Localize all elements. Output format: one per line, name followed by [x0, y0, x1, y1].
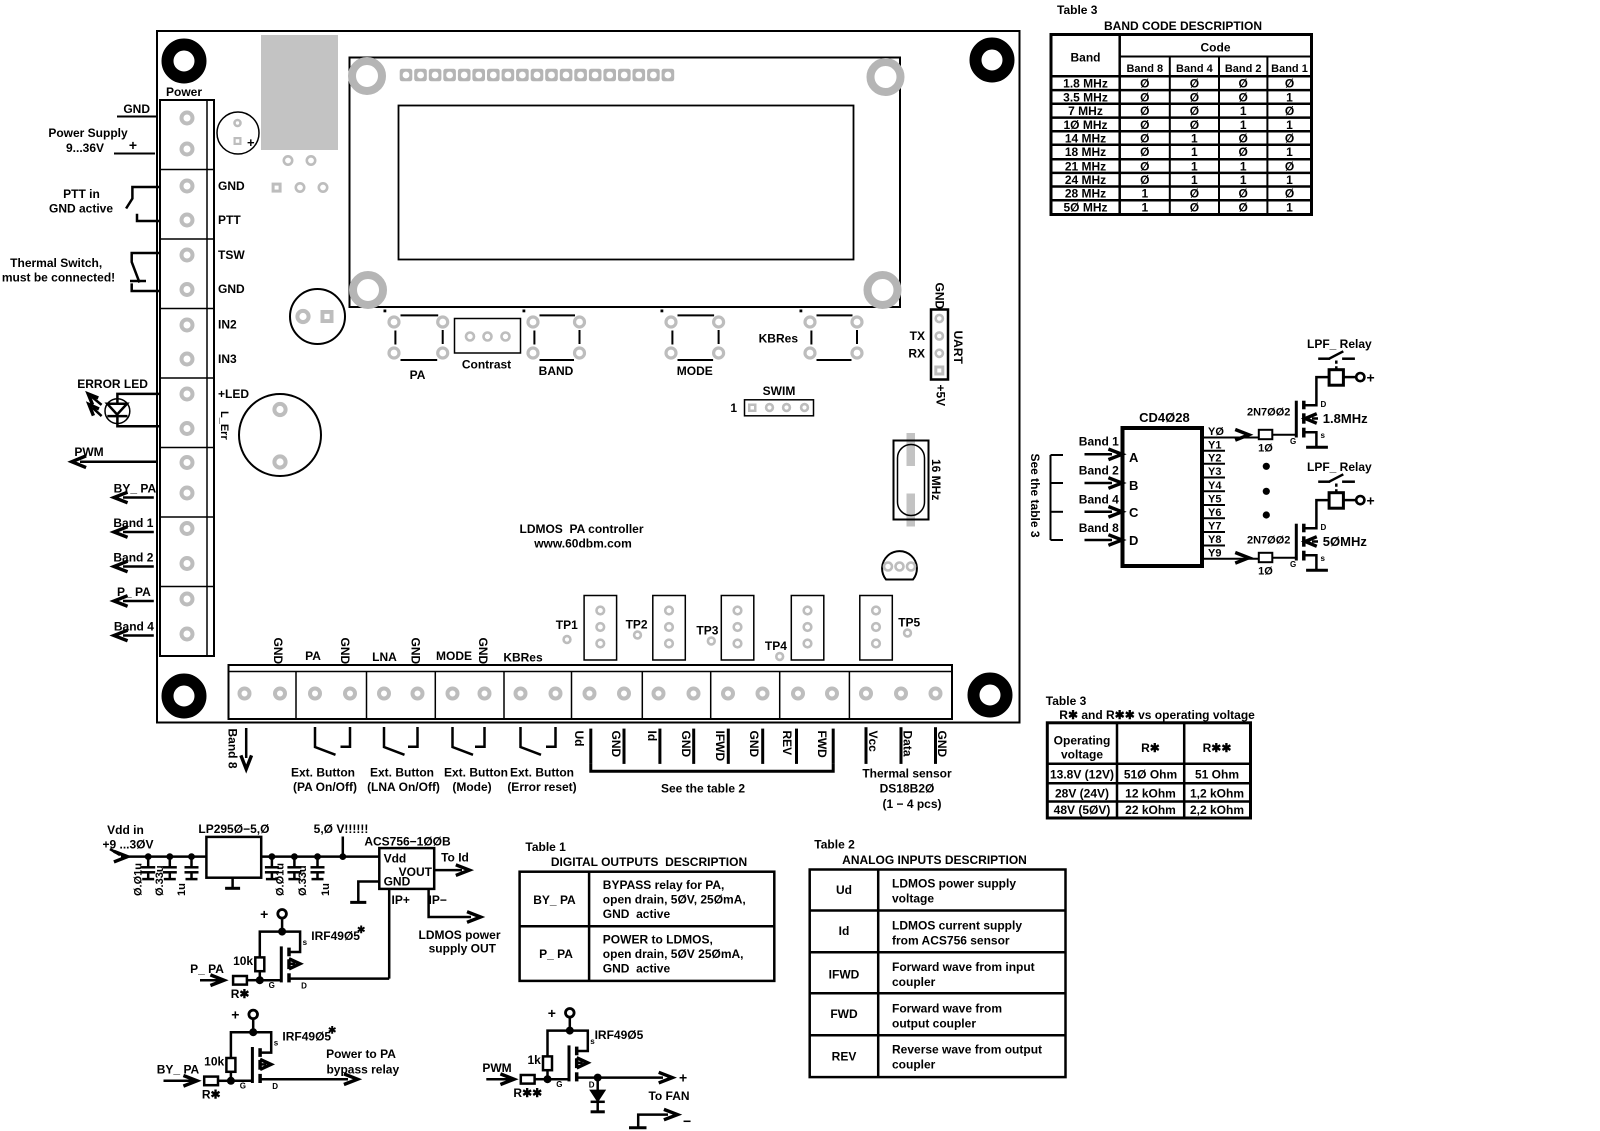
- svg-text:IN3: IN3: [218, 352, 237, 366]
- svg-text:BAND CODE DESCRIPTION: BAND CODE DESCRIPTION: [1104, 19, 1262, 33]
- svg-text:TP4: TP4: [765, 639, 787, 653]
- svg-text:1: 1: [1191, 159, 1198, 173]
- svg-text:Y1: Y1: [1208, 439, 1221, 451]
- svg-text:2N7ØØ2: 2N7ØØ2: [1247, 535, 1290, 547]
- svg-text:Reverse wave from output: Reverse wave from output: [892, 1043, 1042, 1057]
- svg-text:IFWD: IFWD: [713, 731, 727, 762]
- svg-text:G: G: [1290, 560, 1296, 569]
- svg-text:UART: UART: [951, 331, 965, 365]
- svg-text:Thermal sensor: Thermal sensor: [862, 767, 952, 781]
- svg-text:LPF_ Relay: LPF_ Relay: [1307, 460, 1372, 474]
- svg-text:28V (24V): 28V (24V): [1055, 786, 1109, 800]
- svg-text:D: D: [301, 981, 307, 990]
- svg-text:2,2 kOhm: 2,2 kOhm: [1190, 803, 1244, 817]
- svg-text:5,Ø V!!!!!!: 5,Ø V!!!!!!: [314, 822, 369, 836]
- svg-text:1: 1: [1191, 131, 1198, 145]
- svg-text:✱: ✱: [328, 1026, 337, 1037]
- svg-text:IFWD: IFWD: [829, 968, 860, 982]
- svg-text:1: 1: [1240, 104, 1247, 118]
- svg-text:BYPASS relay for PA,: BYPASS relay for PA,: [603, 878, 725, 892]
- svg-text:(PA On/Off): (PA On/Off): [293, 780, 357, 794]
- svg-text:voltage: voltage: [892, 892, 934, 906]
- svg-text:LDMOS current supply: LDMOS current supply: [892, 919, 1022, 933]
- svg-text:Ø.Ø1u: Ø.Ø1u: [274, 863, 286, 896]
- svg-text:DIGITAL OUTPUTS DESCRIPTION: DIGITAL OUTPUTS DESCRIPTION: [551, 855, 747, 869]
- svg-text:IRF49Ø5: IRF49Ø5: [311, 929, 360, 943]
- svg-text:R✱: R✱: [1141, 741, 1160, 755]
- svg-text:Band 8: Band 8: [1126, 63, 1163, 75]
- svg-text:Band 4: Band 4: [1079, 492, 1119, 506]
- svg-text:Ø: Ø: [1239, 77, 1248, 91]
- svg-text:open drain, 5ØV 25ØmA,: open drain, 5ØV 25ØmA,: [603, 947, 744, 961]
- svg-text:R✱ and R✱✱ vs operating voltag: R✱ and R✱✱ vs operating voltage: [1059, 708, 1255, 722]
- svg-text:Ext. Button: Ext. Button: [370, 766, 434, 780]
- svg-text:13.8V (12V): 13.8V (12V): [1050, 768, 1114, 782]
- svg-text:GND active: GND active: [603, 907, 671, 921]
- svg-text:FWD: FWD: [815, 731, 829, 759]
- svg-text:Band 1: Band 1: [1079, 434, 1119, 448]
- svg-text:Ext. Button: Ext. Button: [444, 766, 508, 780]
- svg-text:Y2: Y2: [1208, 452, 1221, 464]
- svg-text:1: 1: [1286, 201, 1293, 215]
- svg-text:Y6: Y6: [1208, 507, 1221, 519]
- svg-text:GND: GND: [933, 283, 947, 310]
- svg-text:To FAN: To FAN: [648, 1089, 689, 1103]
- svg-text:Band 2: Band 2: [1225, 63, 1262, 75]
- svg-text:12 kOhm: 12 kOhm: [1125, 786, 1176, 800]
- svg-text:1: 1: [1240, 118, 1247, 132]
- svg-text:DS18B2Ø: DS18B2Ø: [880, 782, 935, 796]
- svg-text:1: 1: [1240, 173, 1247, 187]
- svg-text:Ud: Ud: [572, 731, 586, 747]
- svg-text:+: +: [1367, 369, 1375, 385]
- svg-text:+: +: [247, 135, 255, 150]
- svg-text:Ø: Ø: [1190, 90, 1199, 104]
- svg-text:1: 1: [1141, 187, 1148, 201]
- svg-text:+: +: [548, 1005, 556, 1021]
- svg-text:Ø: Ø: [1239, 145, 1248, 159]
- svg-text:✱: ✱: [357, 925, 366, 936]
- svg-text:R✱✱: R✱✱: [513, 1086, 542, 1100]
- svg-text:Table 3: Table 3: [1057, 3, 1098, 17]
- svg-text:LDMOS PA controller: LDMOS PA controller: [519, 522, 643, 536]
- svg-text:+LED: +LED: [218, 387, 249, 401]
- svg-text:GND: GND: [747, 731, 761, 758]
- svg-text:Band 8: Band 8: [1079, 521, 1119, 535]
- svg-text:(1 − 4 pcs): (1 − 4 pcs): [882, 797, 941, 811]
- svg-text:must be connected!: must be connected!: [2, 271, 115, 285]
- svg-text:R✱: R✱: [202, 1087, 221, 1101]
- svg-text:G: G: [556, 1080, 562, 1089]
- svg-text:PWM: PWM: [74, 445, 103, 459]
- svg-text:GND: GND: [218, 179, 245, 193]
- svg-text:10k: 10k: [204, 1054, 224, 1068]
- svg-text:Ø: Ø: [1190, 187, 1199, 201]
- svg-text:BAND: BAND: [539, 364, 574, 378]
- svg-text:TP3: TP3: [696, 624, 718, 638]
- svg-text:7 MHz: 7 MHz: [1068, 104, 1103, 118]
- svg-text:1: 1: [1240, 159, 1247, 173]
- svg-text:51 Ohm: 51 Ohm: [1195, 768, 1239, 782]
- svg-text:GND: GND: [609, 731, 623, 758]
- svg-text:REV: REV: [832, 1050, 857, 1064]
- svg-text:Ud: Ud: [836, 883, 852, 897]
- svg-text:GND: GND: [338, 638, 352, 665]
- svg-text:Ø: Ø: [1190, 118, 1199, 132]
- svg-text:SWIM: SWIM: [763, 384, 796, 398]
- svg-text:Power to PA: Power to PA: [326, 1047, 396, 1061]
- svg-text:+: +: [679, 1070, 687, 1086]
- svg-text:R✱✱: R✱✱: [1203, 741, 1232, 755]
- svg-text:GND active: GND active: [603, 962, 671, 976]
- svg-text:s: s: [1321, 431, 1326, 440]
- svg-text:Band 1: Band 1: [113, 516, 153, 530]
- svg-text:LDMOS power supply: LDMOS power supply: [892, 877, 1016, 891]
- svg-text:Ext. Button: Ext. Button: [291, 766, 355, 780]
- svg-text:Table 3: Table 3: [1046, 694, 1087, 708]
- svg-text:See the table 2: See the table 2: [661, 782, 745, 796]
- svg-text:PA: PA: [305, 649, 321, 663]
- svg-text:Table 2: Table 2: [814, 838, 855, 852]
- svg-text:RX: RX: [908, 347, 925, 361]
- svg-text:Ø: Ø: [1190, 201, 1199, 215]
- svg-text:Vdd in: Vdd in: [107, 823, 144, 837]
- svg-text:IP−: IP−: [429, 893, 447, 907]
- svg-text:Ø: Ø: [1239, 201, 1248, 215]
- svg-text:LNA: LNA: [372, 650, 397, 664]
- svg-text:+: +: [1367, 492, 1375, 508]
- svg-text:C: C: [1129, 505, 1139, 520]
- svg-text:1Ø: 1Ø: [1258, 443, 1273, 455]
- svg-text:Ø: Ø: [1285, 187, 1294, 201]
- svg-text:GND: GND: [409, 638, 423, 665]
- svg-text:D: D: [1321, 523, 1327, 532]
- svg-text:G: G: [1290, 437, 1296, 446]
- svg-text:D: D: [589, 1080, 595, 1089]
- svg-text:1: 1: [730, 401, 737, 415]
- svg-text:10k: 10k: [233, 954, 253, 968]
- svg-text:Band 8: Band 8: [226, 729, 240, 769]
- svg-text:Ø: Ø: [1140, 131, 1149, 145]
- svg-text:Ø: Ø: [1140, 145, 1149, 159]
- svg-text:5Ø MHz: 5Ø MHz: [1063, 201, 1107, 215]
- svg-text:+: +: [260, 906, 268, 922]
- svg-text:ACS756−1ØØB: ACS756−1ØØB: [364, 835, 451, 849]
- svg-text:YØ: YØ: [1208, 426, 1224, 438]
- svg-text:MODE: MODE: [677, 364, 713, 378]
- svg-text:5ØMHz: 5ØMHz: [1323, 534, 1368, 549]
- svg-text:Data: Data: [901, 731, 915, 757]
- svg-text:48V (5ØV): 48V (5ØV): [1054, 803, 1111, 817]
- svg-text:Id: Id: [839, 924, 850, 938]
- svg-text:3.5 MHz: 3.5 MHz: [1063, 90, 1108, 104]
- svg-text:Band 2: Band 2: [113, 551, 153, 565]
- svg-text:voltage: voltage: [1061, 748, 1103, 762]
- svg-text:Thermal Switch,: Thermal Switch,: [10, 256, 102, 270]
- svg-text:www.60dbm.com: www.60dbm.com: [533, 537, 632, 551]
- svg-text:bypass relay: bypass relay: [326, 1063, 399, 1077]
- svg-text:21 MHz: 21 MHz: [1065, 159, 1106, 173]
- svg-text:CD4Ø28: CD4Ø28: [1139, 410, 1190, 425]
- svg-text:TX: TX: [910, 329, 925, 343]
- svg-text:1: 1: [1141, 201, 1148, 215]
- svg-text:Ø: Ø: [1140, 77, 1149, 91]
- svg-text:s: s: [1321, 554, 1326, 563]
- svg-text:24 MHz: 24 MHz: [1065, 173, 1106, 187]
- svg-text:1k: 1k: [527, 1053, 541, 1067]
- svg-text:B: B: [1129, 478, 1138, 493]
- svg-text:1u: 1u: [176, 883, 188, 896]
- svg-text:Ext. Button: Ext. Button: [510, 766, 574, 780]
- svg-text:1: 1: [1286, 90, 1293, 104]
- svg-text:+: +: [129, 137, 137, 153]
- svg-text:(Error reset): (Error reset): [507, 780, 576, 794]
- svg-text:1: 1: [1191, 145, 1198, 159]
- svg-text:Operating: Operating: [1054, 734, 1111, 748]
- svg-text:MODE: MODE: [436, 649, 472, 663]
- svg-text:FWD: FWD: [830, 1007, 858, 1021]
- svg-text:LP295Ø−5,Ø: LP295Ø−5,Ø: [198, 822, 269, 836]
- svg-text:22 kOhm: 22 kOhm: [1125, 803, 1176, 817]
- svg-text:Forward wave from input: Forward wave from input: [892, 960, 1035, 974]
- svg-text:1Ø: 1Ø: [1258, 566, 1273, 578]
- svg-text:Band 4: Band 4: [1176, 63, 1214, 75]
- svg-text:Ø: Ø: [1285, 159, 1294, 173]
- svg-text:(Mode): (Mode): [452, 780, 491, 794]
- svg-text:ERROR LED: ERROR LED: [77, 377, 148, 391]
- svg-text:To Id: To Id: [441, 851, 469, 865]
- svg-text:Band 2: Band 2: [1079, 464, 1119, 478]
- svg-text:ANALOG INPUTS DESCRIPTION: ANALOG INPUTS DESCRIPTION: [842, 853, 1027, 867]
- svg-text:Y9: Y9: [1208, 547, 1221, 559]
- svg-text:Ø: Ø: [1239, 187, 1248, 201]
- svg-text:Code: Code: [1201, 41, 1231, 55]
- svg-text:GND: GND: [476, 638, 490, 665]
- svg-text:D: D: [1321, 400, 1327, 409]
- svg-text:28 MHz: 28 MHz: [1065, 187, 1106, 201]
- svg-text:G: G: [269, 981, 275, 990]
- svg-text:TP2: TP2: [626, 618, 648, 632]
- svg-text:G: G: [240, 1081, 246, 1090]
- svg-text:GND: GND: [123, 102, 150, 116]
- svg-text:1: 1: [1286, 145, 1293, 159]
- svg-text:BY_ PA: BY_ PA: [157, 1063, 200, 1077]
- svg-text:1Ø MHz: 1Ø MHz: [1063, 118, 1107, 132]
- svg-text:Ø: Ø: [1285, 131, 1294, 145]
- svg-text:Y7: Y7: [1208, 521, 1221, 533]
- svg-text:R✱: R✱: [231, 987, 250, 1001]
- svg-text:Vdd: Vdd: [384, 852, 407, 866]
- svg-text:Ø: Ø: [1285, 77, 1294, 91]
- svg-text:Ø: Ø: [1140, 173, 1149, 187]
- svg-text:D: D: [1129, 533, 1138, 548]
- svg-text:1: 1: [1191, 173, 1198, 187]
- svg-text:GND: GND: [679, 731, 693, 758]
- svg-text:−: −: [683, 1113, 691, 1129]
- svg-text:See the table 3: See the table 3: [1028, 454, 1042, 538]
- svg-text:Ø: Ø: [1190, 77, 1199, 91]
- svg-text:s: s: [303, 938, 308, 947]
- svg-text:Contrast: Contrast: [462, 358, 511, 372]
- svg-text:A: A: [1129, 450, 1139, 465]
- svg-text:16 MHz: 16 MHz: [929, 459, 943, 500]
- svg-text:IP+: IP+: [392, 893, 410, 907]
- svg-text:PTT: PTT: [218, 213, 241, 227]
- svg-text:Ø.33u: Ø.33u: [297, 865, 309, 896]
- svg-text:BY_ PA: BY_ PA: [533, 893, 576, 907]
- svg-text:Ø: Ø: [1285, 104, 1294, 118]
- svg-text:P_ PA: P_ PA: [539, 947, 573, 961]
- svg-text:Table 1: Table 1: [525, 840, 566, 854]
- svg-text:Y8: Y8: [1208, 534, 1221, 546]
- svg-text:Forward wave from: Forward wave from: [892, 1002, 1002, 1016]
- svg-text:GND active: GND active: [49, 202, 113, 216]
- svg-text:D: D: [272, 1082, 278, 1091]
- svg-text:Ø: Ø: [1140, 104, 1149, 118]
- svg-text:+5V: +5V: [934, 385, 948, 407]
- svg-text:output coupler: output coupler: [892, 1017, 976, 1031]
- svg-text:14 MHz: 14 MHz: [1065, 131, 1106, 145]
- svg-text:P_ PA: P_ PA: [190, 962, 224, 976]
- svg-text:GND: GND: [935, 731, 949, 758]
- svg-text:Ø: Ø: [1140, 159, 1149, 173]
- svg-text:LDMOS power: LDMOS power: [418, 928, 500, 942]
- svg-text:GND: GND: [384, 875, 411, 889]
- svg-text:Band 1: Band 1: [1271, 63, 1308, 75]
- svg-text:1u: 1u: [320, 883, 332, 896]
- svg-text:Ø.33u: Ø.33u: [154, 865, 166, 896]
- svg-text:(LNA On/Off): (LNA On/Off): [367, 780, 440, 794]
- svg-text:Ø: Ø: [1140, 90, 1149, 104]
- svg-text:51Ø Ohm: 51Ø Ohm: [1124, 768, 1177, 782]
- svg-text:KBRes: KBRes: [503, 651, 543, 665]
- svg-text:GND: GND: [271, 638, 285, 665]
- svg-text:Ø: Ø: [1190, 104, 1199, 118]
- svg-text:2N7ØØ2: 2N7ØØ2: [1247, 407, 1290, 419]
- svg-text:open drain, 5ØV, 25ØmA,: open drain, 5ØV, 25ØmA,: [603, 893, 746, 907]
- svg-text:supply OUT: supply OUT: [429, 942, 497, 956]
- svg-text:coupler: coupler: [892, 1058, 936, 1072]
- svg-text:LPF_ Relay: LPF_ Relay: [1307, 337, 1372, 351]
- svg-text:REV: REV: [780, 731, 794, 756]
- svg-text:IRF49Ø5: IRF49Ø5: [595, 1028, 644, 1042]
- svg-text:1.8 MHz: 1.8 MHz: [1063, 77, 1108, 91]
- svg-text:Band: Band: [1071, 51, 1101, 65]
- svg-text:coupler: coupler: [892, 975, 936, 989]
- svg-text:Vcc: Vcc: [866, 731, 880, 753]
- svg-text:+: +: [231, 1006, 239, 1022]
- svg-text:9...36V: 9...36V: [66, 141, 104, 155]
- svg-text:PTT in: PTT in: [63, 187, 100, 201]
- svg-text:Ø: Ø: [1239, 90, 1248, 104]
- svg-text:1: 1: [1286, 173, 1293, 187]
- svg-text:1,2 kOhm: 1,2 kOhm: [1190, 786, 1244, 800]
- svg-text:Id: Id: [645, 731, 659, 742]
- svg-text:TSW: TSW: [218, 248, 245, 262]
- svg-text:Power: Power: [166, 85, 202, 99]
- svg-text:IN2: IN2: [218, 318, 237, 332]
- svg-text:Y4: Y4: [1208, 480, 1222, 492]
- svg-text:18 MHz: 18 MHz: [1065, 145, 1106, 159]
- svg-text:Ø.Ø1u: Ø.Ø1u: [133, 863, 145, 896]
- svg-text:s: s: [274, 1038, 279, 1047]
- svg-text:POWER to LDMOS,: POWER to LDMOS,: [603, 933, 713, 947]
- svg-text:Power Supply: Power Supply: [48, 126, 128, 140]
- svg-text:Y5: Y5: [1208, 494, 1221, 506]
- svg-text:PA: PA: [410, 368, 426, 382]
- svg-text:PWM: PWM: [482, 1061, 511, 1075]
- svg-text:1.8MHz: 1.8MHz: [1323, 411, 1368, 426]
- svg-text:TP1: TP1: [556, 618, 578, 632]
- svg-text:Ø: Ø: [1140, 118, 1149, 132]
- svg-text:from ACS756 sensor: from ACS756 sensor: [892, 934, 1010, 948]
- svg-text:TP5: TP5: [898, 616, 920, 630]
- svg-text:L_Err: L_Err: [218, 411, 230, 440]
- svg-text:Y3: Y3: [1208, 466, 1221, 478]
- svg-text:GND: GND: [218, 282, 245, 296]
- svg-text:IRF49Ø5: IRF49Ø5: [282, 1030, 331, 1044]
- svg-text:Ø: Ø: [1239, 131, 1248, 145]
- svg-text:1: 1: [1286, 118, 1293, 132]
- svg-text:KBRes: KBRes: [759, 332, 799, 346]
